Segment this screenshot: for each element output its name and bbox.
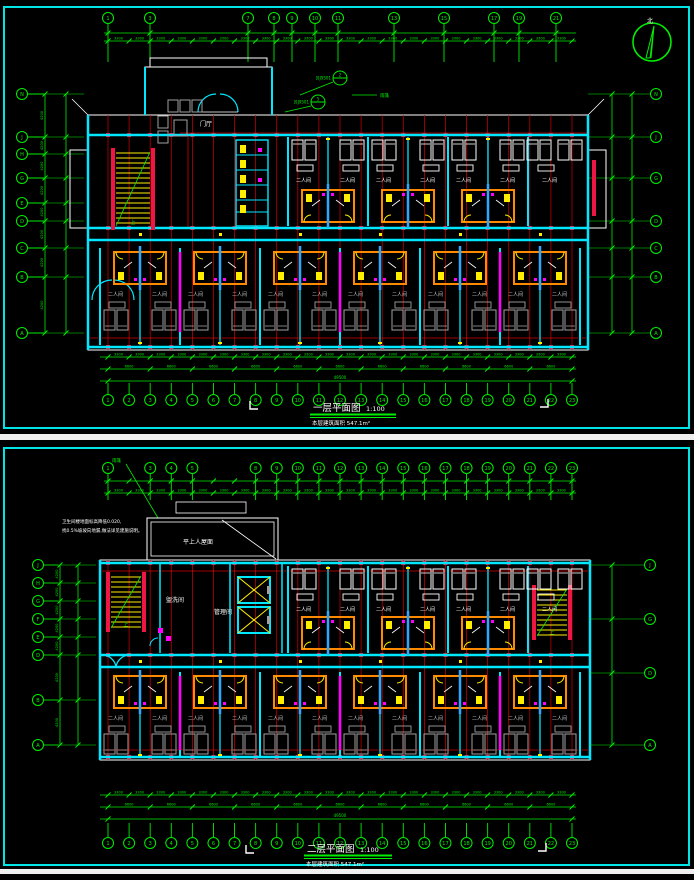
svg-text:F: F <box>37 617 40 623</box>
svg-text:G: G <box>20 176 24 182</box>
svg-text:N: N <box>20 92 24 98</box>
svg-text:H: H <box>36 581 40 587</box>
svg-text:3300: 3300 <box>135 37 144 41</box>
svg-text:盥洗间: 盥洗间 <box>166 596 184 604</box>
svg-text:J: J <box>654 135 656 141</box>
svg-text:23: 23 <box>569 398 575 404</box>
svg-text:门厅: 门厅 <box>200 120 212 128</box>
svg-text:10: 10 <box>312 16 318 22</box>
svg-text:6600: 6600 <box>462 365 471 369</box>
svg-text:6600: 6600 <box>167 803 176 807</box>
svg-text:上: 上 <box>549 629 554 636</box>
svg-text:18: 18 <box>463 841 469 847</box>
svg-text:3300: 3300 <box>452 489 461 493</box>
svg-text:3300: 3300 <box>177 489 186 493</box>
svg-text:二人间: 二人间 <box>552 715 567 722</box>
svg-text:3300: 3300 <box>515 489 524 493</box>
svg-text:B: B <box>36 698 40 704</box>
svg-text:21: 21 <box>527 841 533 847</box>
svg-text:J: J <box>648 563 650 569</box>
svg-text:3300: 3300 <box>346 791 355 795</box>
svg-text:4200: 4200 <box>40 162 44 171</box>
svg-text:二人间: 二人间 <box>312 715 327 722</box>
svg-text:A: A <box>36 743 40 749</box>
svg-text:3300: 3300 <box>494 37 503 41</box>
svg-text:6600: 6600 <box>293 803 302 807</box>
svg-text:二人间: 二人间 <box>348 291 363 298</box>
svg-text:A: A <box>654 331 658 337</box>
svg-text:二人间: 二人间 <box>500 606 515 613</box>
svg-text:3300: 3300 <box>156 37 165 41</box>
svg-text:二人间: 二人间 <box>500 177 515 184</box>
svg-text:3300: 3300 <box>241 489 250 493</box>
svg-text:3300: 3300 <box>388 37 397 41</box>
svg-text:3300: 3300 <box>262 489 271 493</box>
svg-text:二人间: 二人间 <box>542 177 557 184</box>
svg-text:3300: 3300 <box>557 489 566 493</box>
svg-text:二人间: 二人间 <box>472 291 487 298</box>
svg-text:6600: 6600 <box>378 365 387 369</box>
svg-text:二人间: 二人间 <box>312 291 327 298</box>
svg-text:3300: 3300 <box>283 489 292 493</box>
svg-text:二人间: 二人间 <box>188 291 203 298</box>
svg-text:13: 13 <box>358 466 364 472</box>
plan-area-note: 本层建筑面积 547.1m² <box>312 419 370 427</box>
plan-scale: 1:100 <box>366 405 385 413</box>
svg-text:4200: 4200 <box>40 230 44 239</box>
svg-text:3300: 3300 <box>473 791 482 795</box>
svg-text:21: 21 <box>527 466 533 472</box>
svg-text:4: 4 <box>170 466 173 472</box>
svg-text:4200: 4200 <box>55 606 59 615</box>
svg-text:6600: 6600 <box>251 803 260 807</box>
svg-text:3300: 3300 <box>304 37 313 41</box>
svg-text:8: 8 <box>254 398 257 404</box>
svg-text:3300: 3300 <box>177 37 186 41</box>
svg-text:49500: 49500 <box>334 813 347 818</box>
svg-text:21: 21 <box>553 16 559 22</box>
svg-text:5: 5 <box>191 841 194 847</box>
svg-text:3300: 3300 <box>220 353 229 357</box>
svg-text:6600: 6600 <box>420 365 429 369</box>
svg-text:3300: 3300 <box>388 791 397 795</box>
svg-text:4: 4 <box>170 398 173 404</box>
svg-text:3300: 3300 <box>388 489 397 493</box>
svg-text:19: 19 <box>516 16 522 22</box>
svg-text:二人间: 二人间 <box>472 715 487 722</box>
svg-text:3300: 3300 <box>452 353 461 357</box>
svg-text:3: 3 <box>149 398 152 404</box>
svg-text:管理间: 管理间 <box>214 608 232 616</box>
svg-text:二人间: 二人间 <box>340 606 355 613</box>
svg-text:3300: 3300 <box>515 353 524 357</box>
svg-text:二人间: 二人间 <box>392 715 407 722</box>
svg-text:6600: 6600 <box>125 365 134 369</box>
svg-text:22: 22 <box>548 466 554 472</box>
svg-text:23: 23 <box>569 466 575 472</box>
svg-text:15: 15 <box>441 16 447 22</box>
svg-text:3300: 3300 <box>177 353 186 357</box>
svg-text:找0.5%坡坡向地漏,做法详见建施说明。: 找0.5%坡坡向地漏,做法详见建施说明。 <box>62 527 142 534</box>
svg-text:D: D <box>648 671 652 677</box>
svg-text:15: 15 <box>400 841 406 847</box>
svg-text:9: 9 <box>275 398 278 404</box>
svg-text:3300: 3300 <box>452 791 461 795</box>
svg-text:二人间: 二人间 <box>392 291 407 298</box>
svg-text:3300: 3300 <box>198 353 207 357</box>
svg-text:6600: 6600 <box>209 803 218 807</box>
svg-text:6600: 6600 <box>546 365 555 369</box>
svg-text:卫生间楼地面标高降低0.020,: 卫生间楼地面标高降低0.020, <box>62 518 121 525</box>
svg-text:1: 1 <box>106 16 109 22</box>
svg-text:16: 16 <box>421 398 427 404</box>
svg-text:2: 2 <box>127 398 130 404</box>
svg-text:10: 10 <box>295 398 301 404</box>
svg-text:3300: 3300 <box>536 791 545 795</box>
svg-text:3300: 3300 <box>473 37 482 41</box>
svg-text:3300: 3300 <box>367 791 376 795</box>
svg-text:J: J <box>20 135 22 141</box>
svg-text:4200: 4200 <box>40 141 44 150</box>
svg-text:二人间: 二人间 <box>152 715 167 722</box>
svg-text:20: 20 <box>506 841 512 847</box>
svg-text:3300: 3300 <box>198 791 207 795</box>
svg-text:3300: 3300 <box>283 353 292 357</box>
title-underline <box>304 858 392 859</box>
svg-text:3300: 3300 <box>536 37 545 41</box>
svg-text:15: 15 <box>400 466 406 472</box>
svg-text:二人间: 二人间 <box>508 715 523 722</box>
svg-text:二人间: 二人间 <box>552 291 567 298</box>
svg-text:3300: 3300 <box>409 489 418 493</box>
svg-text:8: 8 <box>254 466 257 472</box>
svg-text:3300: 3300 <box>114 791 123 795</box>
svg-text:17: 17 <box>442 841 448 847</box>
plan-title: 二层平面图 <box>307 844 355 855</box>
svg-text:D: D <box>654 219 658 225</box>
svg-text:4200: 4200 <box>55 588 59 597</box>
svg-text:3300: 3300 <box>156 353 165 357</box>
svg-text:7: 7 <box>233 398 236 404</box>
svg-text:3300: 3300 <box>409 353 418 357</box>
svg-text:3300: 3300 <box>536 489 545 493</box>
svg-text:二人间: 二人间 <box>108 291 123 298</box>
svg-text:二人间: 二人间 <box>188 715 203 722</box>
svg-text:3300: 3300 <box>557 353 566 357</box>
svg-text:3300: 3300 <box>241 791 250 795</box>
svg-text:6600: 6600 <box>336 803 345 807</box>
svg-text:21: 21 <box>527 398 533 404</box>
svg-text:13: 13 <box>391 16 397 22</box>
svg-text:3300: 3300 <box>114 489 123 493</box>
svg-text:3300: 3300 <box>494 353 503 357</box>
svg-text:二人间: 二人间 <box>232 715 247 722</box>
svg-text:16: 16 <box>421 841 427 847</box>
title-underline <box>310 414 396 416</box>
svg-text:6600: 6600 <box>546 803 555 807</box>
svg-text:3300: 3300 <box>304 791 313 795</box>
svg-text:3300: 3300 <box>135 353 144 357</box>
title-underline <box>304 855 392 857</box>
svg-text:3300: 3300 <box>198 489 207 493</box>
svg-text:3300: 3300 <box>220 489 229 493</box>
svg-text:二人间: 二人间 <box>428 291 443 298</box>
svg-text:B: B <box>20 275 24 281</box>
svg-text:3300: 3300 <box>156 489 165 493</box>
svg-text:3300: 3300 <box>557 791 566 795</box>
svg-text:18: 18 <box>463 398 469 404</box>
svg-text:二人间: 二人间 <box>268 291 283 298</box>
svg-text:3300: 3300 <box>515 37 524 41</box>
svg-text:二人间: 二人间 <box>456 606 471 613</box>
svg-text:N: N <box>654 92 658 98</box>
svg-text:二人间: 二人间 <box>542 606 557 613</box>
svg-text:3300: 3300 <box>346 37 355 41</box>
svg-text:4200: 4200 <box>55 718 59 727</box>
sheet-seam <box>0 434 694 440</box>
svg-text:17: 17 <box>442 398 448 404</box>
svg-text:3300: 3300 <box>304 353 313 357</box>
svg-text:J: J <box>36 563 38 569</box>
svg-text:上: 上 <box>123 621 128 628</box>
svg-text:2: 2 <box>127 841 130 847</box>
svg-text:6600: 6600 <box>293 365 302 369</box>
svg-text:4200: 4200 <box>55 570 59 579</box>
svg-text:3300: 3300 <box>262 791 271 795</box>
svg-text:4200: 4200 <box>40 186 44 195</box>
svg-text:平上人屋面: 平上人屋面 <box>183 538 213 546</box>
svg-text:雨篷: 雨篷 <box>112 457 121 464</box>
svg-text:G: G <box>36 599 40 605</box>
svg-text:3300: 3300 <box>198 37 207 41</box>
svg-text:4200: 4200 <box>40 301 44 310</box>
svg-text:3300: 3300 <box>114 353 123 357</box>
svg-text:3300: 3300 <box>494 791 503 795</box>
svg-text:3300: 3300 <box>430 489 439 493</box>
svg-text:二人间: 二人间 <box>376 177 391 184</box>
svg-text:苏J9501: 苏J9501 <box>316 75 332 81</box>
svg-text:3300: 3300 <box>557 37 566 41</box>
svg-text:6600: 6600 <box>251 365 260 369</box>
svg-text:A: A <box>648 743 652 749</box>
svg-text:3300: 3300 <box>346 489 355 493</box>
svg-text:2: 2 <box>339 73 342 78</box>
svg-text:H: H <box>20 152 24 158</box>
svg-text:1: 1 <box>106 466 109 472</box>
svg-text:3300: 3300 <box>473 489 482 493</box>
svg-text:3300: 3300 <box>367 37 376 41</box>
svg-text:二人间: 二人间 <box>340 177 355 184</box>
svg-text:18: 18 <box>463 466 469 472</box>
svg-text:3300: 3300 <box>430 791 439 795</box>
svg-text:12: 12 <box>337 466 343 472</box>
svg-text:3300: 3300 <box>135 791 144 795</box>
plan-area-note: 本层建筑面积 547.1m² <box>306 860 364 868</box>
svg-text:二人间: 二人间 <box>376 606 391 613</box>
svg-text:5: 5 <box>317 97 320 102</box>
svg-text:6600: 6600 <box>378 803 387 807</box>
svg-text:17: 17 <box>491 16 497 22</box>
svg-text:3300: 3300 <box>262 353 271 357</box>
svg-text:二人间: 二人间 <box>420 606 435 613</box>
svg-text:二人间: 二人间 <box>508 291 523 298</box>
svg-text:3300: 3300 <box>367 353 376 357</box>
plan-scale: 1:100 <box>360 846 379 854</box>
svg-text:7: 7 <box>233 841 236 847</box>
svg-text:苏J9501: 苏J9501 <box>294 99 310 105</box>
svg-text:二人间: 二人间 <box>268 715 283 722</box>
svg-text:3300: 3300 <box>473 353 482 357</box>
title-underline <box>310 417 396 418</box>
svg-text:二人间: 二人间 <box>296 606 311 613</box>
svg-text:49500: 49500 <box>334 375 347 380</box>
svg-text:9: 9 <box>275 466 278 472</box>
svg-text:19: 19 <box>484 466 490 472</box>
svg-text:15: 15 <box>400 398 406 404</box>
svg-text:3300: 3300 <box>430 37 439 41</box>
svg-text:3300: 3300 <box>262 37 271 41</box>
svg-text:6600: 6600 <box>462 803 471 807</box>
svg-text:5: 5 <box>191 398 194 404</box>
svg-text:4200: 4200 <box>40 111 44 120</box>
svg-text:20: 20 <box>506 466 512 472</box>
svg-text:17: 17 <box>442 466 448 472</box>
svg-text:二人间: 二人间 <box>348 715 363 722</box>
svg-text:3300: 3300 <box>325 37 334 41</box>
svg-text:3300: 3300 <box>220 791 229 795</box>
svg-text:6600: 6600 <box>125 803 134 807</box>
svg-text:D: D <box>20 219 24 225</box>
svg-text:3300: 3300 <box>430 353 439 357</box>
svg-text:11: 11 <box>316 466 322 472</box>
svg-text:6600: 6600 <box>209 365 218 369</box>
svg-text:G: G <box>648 617 652 623</box>
svg-text:4200: 4200 <box>40 258 44 267</box>
svg-text:3: 3 <box>148 16 151 22</box>
svg-text:6600: 6600 <box>504 365 513 369</box>
svg-text:3300: 3300 <box>388 353 397 357</box>
cad-sheet: 1378910111315171921330033003300330033003… <box>0 0 694 880</box>
svg-text:3300: 3300 <box>346 353 355 357</box>
sheet-seam <box>0 869 694 874</box>
svg-text:二人间: 二人间 <box>232 291 247 298</box>
svg-text:19: 19 <box>484 398 490 404</box>
svg-text:11: 11 <box>335 16 341 22</box>
svg-text:3300: 3300 <box>241 353 250 357</box>
svg-text:3: 3 <box>149 466 152 472</box>
svg-text:二人间: 二人间 <box>420 177 435 184</box>
svg-text:二人间: 二人间 <box>296 177 311 184</box>
svg-text:1: 1 <box>106 841 109 847</box>
svg-text:5: 5 <box>191 466 194 472</box>
svg-text:14: 14 <box>379 841 385 847</box>
svg-text:E: E <box>20 201 23 207</box>
svg-text:G: G <box>654 176 658 182</box>
svg-text:14: 14 <box>379 466 385 472</box>
svg-text:3300: 3300 <box>515 791 524 795</box>
svg-text:9: 9 <box>275 841 278 847</box>
svg-text:4200: 4200 <box>55 624 59 633</box>
svg-text:3300: 3300 <box>241 37 250 41</box>
svg-text:上: 上 <box>130 219 135 226</box>
svg-text:10: 10 <box>295 841 301 847</box>
svg-text:6600: 6600 <box>336 365 345 369</box>
svg-text:8: 8 <box>272 16 275 22</box>
svg-text:3300: 3300 <box>177 791 186 795</box>
svg-text:7: 7 <box>246 16 249 22</box>
north-label: 北 <box>647 17 653 25</box>
svg-text:D: D <box>36 653 40 659</box>
svg-text:23: 23 <box>569 841 575 847</box>
svg-text:6600: 6600 <box>420 803 429 807</box>
svg-text:16: 16 <box>421 466 427 472</box>
svg-text:3300: 3300 <box>325 791 334 795</box>
svg-text:1: 1 <box>106 398 109 404</box>
svg-text:4200: 4200 <box>55 673 59 682</box>
svg-text:6: 6 <box>212 398 215 404</box>
svg-text:22: 22 <box>548 841 554 847</box>
svg-text:8: 8 <box>254 841 257 847</box>
svg-text:20: 20 <box>506 398 512 404</box>
svg-text:3300: 3300 <box>325 353 334 357</box>
svg-text:二人间: 二人间 <box>108 715 123 722</box>
svg-text:C: C <box>654 246 658 252</box>
svg-text:6600: 6600 <box>167 365 176 369</box>
svg-text:9: 9 <box>290 16 293 22</box>
svg-text:A: A <box>20 331 24 337</box>
svg-text:3300: 3300 <box>409 37 418 41</box>
svg-text:E: E <box>36 635 39 641</box>
svg-text:3300: 3300 <box>114 37 123 41</box>
svg-text:雨篷: 雨篷 <box>380 92 389 99</box>
svg-text:4200: 4200 <box>55 642 59 651</box>
svg-text:19: 19 <box>484 841 490 847</box>
svg-text:6: 6 <box>212 841 215 847</box>
svg-text:3300: 3300 <box>494 489 503 493</box>
svg-text:B: B <box>654 275 658 281</box>
svg-text:3300: 3300 <box>536 353 545 357</box>
svg-text:3300: 3300 <box>325 489 334 493</box>
svg-text:3300: 3300 <box>452 37 461 41</box>
svg-text:4200: 4200 <box>40 208 44 217</box>
svg-text:3300: 3300 <box>283 791 292 795</box>
svg-text:C: C <box>20 246 24 252</box>
svg-text:3300: 3300 <box>367 489 376 493</box>
svg-text:10: 10 <box>295 466 301 472</box>
svg-text:3: 3 <box>149 841 152 847</box>
svg-text:3300: 3300 <box>156 791 165 795</box>
svg-text:3300: 3300 <box>283 37 292 41</box>
svg-text:3300: 3300 <box>304 489 313 493</box>
svg-text:4: 4 <box>170 841 173 847</box>
svg-text:3300: 3300 <box>220 37 229 41</box>
svg-text:6600: 6600 <box>504 803 513 807</box>
svg-text:二人间: 二人间 <box>152 291 167 298</box>
svg-text:二人间: 二人间 <box>428 715 443 722</box>
svg-text:二人间: 二人间 <box>456 177 471 184</box>
svg-text:14: 14 <box>379 398 385 404</box>
svg-text:3300: 3300 <box>409 791 418 795</box>
plan-title: 一层平面图 <box>313 403 361 414</box>
